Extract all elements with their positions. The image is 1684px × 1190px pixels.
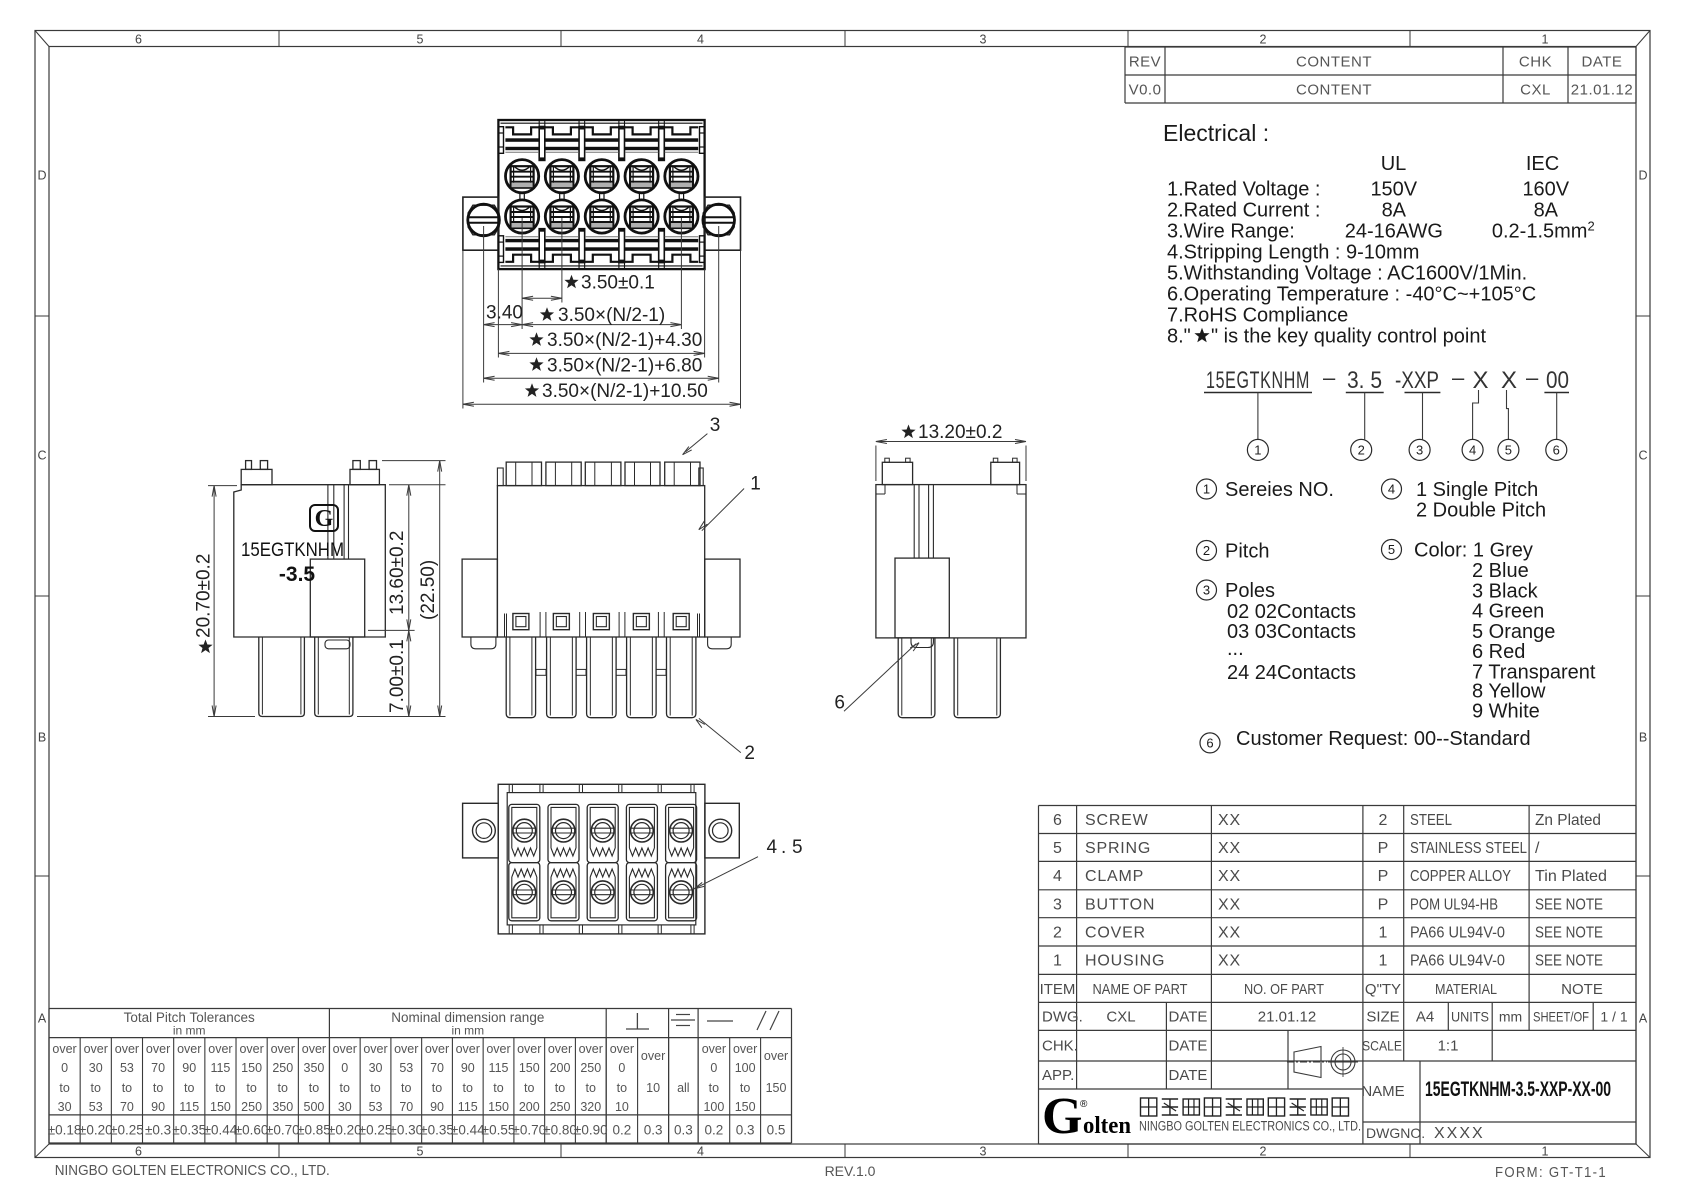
svg-text:SEE NOTE: SEE NOTE [1535,896,1603,913]
svg-text:6: 6 [135,33,142,47]
svg-text:3.50×(N/2-1)+4.30: 3.50×(N/2-1)+4.30 [547,330,702,351]
svg-text:to: to [340,1081,350,1095]
svg-text:250: 250 [580,1061,601,1075]
svg-text:to: to [215,1081,225,1095]
svg-text:5 Orange: 5 Orange [1472,621,1555,643]
svg-text:3.50×(N/2-1)+10.50: 3.50×(N/2-1)+10.50 [542,381,708,402]
svg-text:10: 10 [615,1100,629,1114]
svg-text:CHK.: CHK. [1042,1038,1078,1055]
svg-text:–: – [1526,365,1539,390]
svg-text:±0.25: ±0.25 [359,1123,393,1138]
svg-text:8 Yellow: 8 Yellow [1472,681,1546,703]
svg-text:±0.25: ±0.25 [110,1123,144,1138]
svg-text:350: 350 [304,1061,325,1075]
svg-text:X: X [1501,367,1517,394]
svg-text:15EGTKNHM: 15EGTKNHM [241,539,344,561]
svg-text:over: over [177,1042,201,1056]
svg-text:NAME OF PART: NAME OF PART [1093,981,1188,998]
svg-text:to: to [463,1081,473,1095]
svg-text:6 Red: 6 Red [1472,641,1525,663]
svg-text:STEEL: STEEL [1410,812,1452,829]
svg-text:53: 53 [369,1100,383,1114]
svg-text:1 / 1: 1 / 1 [1600,1009,1627,1025]
svg-text:0: 0 [341,1061,348,1075]
svg-text:to: to [59,1081,69,1095]
svg-text:to: to [153,1081,163,1095]
svg-text:to: to [586,1081,596,1095]
svg-text:0.3: 0.3 [674,1123,693,1138]
svg-text:4: 4 [697,33,704,47]
svg-text:over: over [579,1042,603,1056]
svg-text:6: 6 [834,693,845,714]
svg-text:ITEM: ITEM [1040,981,1076,998]
svg-text:to: to [401,1081,411,1095]
svg-text:3: 3 [980,1145,987,1159]
svg-text:90: 90 [461,1061,475,1075]
svg-text:Zn Plated: Zn Plated [1535,812,1601,829]
svg-text:A: A [1639,1012,1648,1026]
svg-text:03 03Contacts: 03 03Contacts [1227,621,1356,643]
svg-text:Customer Request: 00--Standard: Customer Request: 00--Standard [1236,728,1531,750]
svg-text:100: 100 [703,1100,724,1114]
svg-text:" is the key quality control p: " is the key quality control point [1211,326,1486,348]
svg-text:V0.0: V0.0 [1129,82,1162,99]
svg-text:30: 30 [338,1100,352,1114]
svg-text:olten: olten [1083,1113,1131,1139]
svg-text:±0.90: ±0.90 [574,1123,608,1138]
svg-text:3: 3 [980,33,987,47]
svg-text:UL: UL [1381,153,1407,175]
svg-text:IEC: IEC [1526,153,1559,175]
svg-text:3: 3 [1053,896,1062,913]
svg-text:70: 70 [399,1100,413,1114]
svg-text:115: 115 [179,1100,199,1114]
svg-text:6.Operating Temperature : -40°: 6.Operating Temperature : -40°C~+105°C [1167,284,1536,306]
svg-text:250: 250 [241,1100,262,1114]
svg-text:XX: XX [1218,840,1241,857]
svg-text:in mm: in mm [173,1024,206,1038]
svg-text:XX: XX [1218,868,1241,885]
svg-text:all: all [677,1081,690,1095]
svg-text:XXXX: XXXX [1434,1125,1485,1142]
svg-text:4: 4 [1469,442,1476,457]
svg-text:200: 200 [550,1061,571,1075]
svg-text:STAINLESS STEEL: STAINLESS STEEL [1410,840,1527,857]
svg-text:5: 5 [1388,542,1395,557]
svg-text:3: 3 [710,415,721,436]
svg-text:over: over [610,1042,634,1056]
svg-text:SEE NOTE: SEE NOTE [1535,924,1603,941]
svg-text:2: 2 [1358,442,1365,457]
svg-text:SCREW: SCREW [1085,812,1149,829]
svg-text:SCALE: SCALE [1362,1038,1402,1054]
svg-text:POM UL94-HB: POM UL94-HB [1410,896,1498,913]
svg-text:B: B [38,731,46,745]
svg-text:over: over [456,1042,480,1056]
svg-text:320: 320 [580,1100,601,1114]
svg-text:100: 100 [735,1061,756,1075]
svg-text:HOUSING: HOUSING [1085,953,1165,970]
svg-text:7.RoHS Compliance: 7.RoHS Compliance [1167,305,1348,327]
svg-text:over: over [641,1049,665,1063]
svg-text:1.Rated Voltage :: 1.Rated Voltage : [1167,179,1320,201]
svg-text:D: D [1638,169,1647,183]
svg-text:115: 115 [489,1061,509,1075]
svg-text:CXL: CXL [1106,1009,1135,1026]
svg-text:13.60±0.2: 13.60±0.2 [387,531,408,615]
svg-text:2: 2 [1260,33,1267,47]
svg-text:±0.70: ±0.70 [512,1123,546,1138]
svg-text:2: 2 [1203,543,1210,558]
svg-text:CONTENT: CONTENT [1296,54,1372,71]
svg-text:70: 70 [120,1100,134,1114]
svg-text:over: over [548,1042,572,1056]
svg-text:2: 2 [1053,924,1062,941]
svg-text:1: 1 [1053,953,1062,970]
svg-text:0.2: 0.2 [613,1123,632,1138]
svg-text:7.00±0.1: 7.00±0.1 [387,639,408,713]
svg-text:6: 6 [1053,812,1062,829]
svg-text:3.50×(N/2-1)+6.80: 3.50×(N/2-1)+6.80 [547,356,702,377]
svg-text:NOTE: NOTE [1561,981,1603,998]
svg-text:NO. OF PART: NO. OF PART [1244,981,1324,998]
svg-text:±0.70: ±0.70 [266,1123,300,1138]
svg-text:70: 70 [430,1061,444,1075]
svg-text:±0.35: ±0.35 [172,1123,206,1138]
svg-text:COVER: COVER [1085,924,1146,941]
svg-text:±0.20: ±0.20 [79,1123,113,1138]
svg-text:PA66 UL94V-0: PA66 UL94V-0 [1410,924,1505,941]
svg-text:90: 90 [430,1100,444,1114]
svg-text:to: to [493,1081,503,1095]
svg-text:3: 3 [1416,442,1423,457]
svg-text:-3.5: -3.5 [279,563,316,586]
svg-text:DWG.: DWG. [1042,1009,1083,1026]
svg-text:D: D [37,169,46,183]
svg-text:APP.: APP. [1042,1067,1074,1084]
svg-text:DATE: DATE [1169,1067,1208,1084]
svg-text:over: over [84,1042,108,1056]
svg-text:3.50±0.1: 3.50±0.1 [581,273,655,294]
svg-text:FORM: GT-T1-1: FORM: GT-T1-1 [1495,1164,1607,1181]
svg-text:CXL: CXL [1520,82,1551,99]
svg-text:C: C [37,449,46,463]
svg-text:2 Double Pitch: 2 Double Pitch [1416,500,1546,522]
svg-text:115: 115 [210,1061,230,1075]
svg-text:5: 5 [792,837,803,858]
svg-text:8.": 8." [1167,326,1191,348]
svg-text:over: over [333,1042,357,1056]
svg-text:±0.3: ±0.3 [145,1123,171,1138]
svg-text:CONTENT: CONTENT [1296,82,1372,99]
svg-text:to: to [246,1081,256,1095]
svg-text:150: 150 [735,1100,756,1114]
svg-text:to: to [524,1081,534,1095]
svg-text:150V: 150V [1370,179,1417,201]
svg-text:53: 53 [120,1061,134,1075]
svg-text:70: 70 [151,1061,165,1075]
svg-text:2: 2 [1379,812,1388,829]
svg-text:30: 30 [89,1061,103,1075]
svg-text:over: over [239,1042,263,1056]
svg-text:3: 3 [1203,583,1210,598]
svg-text:Sereies NO.: Sereies NO. [1225,479,1334,501]
svg-text:6: 6 [135,1145,142,1159]
svg-text:02 02Contacts: 02 02Contacts [1227,601,1356,623]
svg-text:30: 30 [369,1061,383,1075]
svg-text:in mm: in mm [451,1024,484,1038]
svg-text:over: over [363,1042,387,1056]
svg-text:over: over [52,1042,76,1056]
svg-text:21.01.12: 21.01.12 [1258,1009,1316,1026]
svg-text:SIZE: SIZE [1366,1009,1399,1026]
svg-text:to: to [278,1081,288,1095]
svg-text:NINGBO GOLTEN ELECTRONICS CO.,: NINGBO GOLTEN ELECTRONICS CO., LTD. [1139,1119,1361,1134]
svg-text:20.70±0.2: 20.70±0.2 [194,554,215,638]
svg-text:250: 250 [550,1100,571,1114]
svg-text:±0.85: ±0.85 [297,1123,331,1138]
svg-text:00: 00 [1546,367,1569,394]
svg-text:over: over [271,1042,295,1056]
svg-text:SHEET/OF: SHEET/OF [1533,1009,1589,1025]
svg-text:1: 1 [1379,953,1388,970]
svg-text:UNITS: UNITS [1451,1009,1489,1025]
svg-text:1 Single Pitch: 1 Single Pitch [1416,479,1538,501]
svg-text:0: 0 [61,1061,68,1075]
svg-text:3 Black: 3 Black [1472,580,1539,602]
svg-text:/: / [1535,840,1540,857]
svg-text:XX: XX [1218,896,1241,913]
svg-text:160V: 160V [1522,179,1569,201]
svg-text:mm: mm [1499,1009,1522,1025]
svg-text:®: ® [1080,1099,1088,1110]
svg-text:DWGNO.: DWGNO. [1366,1125,1425,1141]
svg-text:21.01.12: 21.01.12 [1571,82,1633,99]
svg-text:150: 150 [766,1081,787,1095]
svg-text:6: 6 [1206,735,1213,750]
svg-text:24 24Contacts: 24 24Contacts [1227,662,1356,684]
svg-text:over: over [517,1042,541,1056]
svg-text:0.2-1.5mm2: 0.2-1.5mm2 [1492,219,1595,243]
svg-text:–: – [1323,365,1336,390]
svg-text:DATE: DATE [1582,54,1623,71]
svg-text:13.20±0.2: 13.20±0.2 [918,422,1002,443]
svg-text:±0.35: ±0.35 [420,1123,454,1138]
svg-text:15EGTKNHM: 15EGTKNHM [1206,367,1310,394]
svg-text:1: 1 [1203,482,1210,497]
svg-text:to: to [709,1081,719,1095]
svg-text:3.Wire Range:: 3.Wire Range: [1167,221,1295,243]
svg-text:–: – [1452,365,1465,390]
svg-text:to: to [370,1081,380,1095]
svg-text:250: 250 [272,1061,293,1075]
svg-text:G: G [315,506,334,532]
svg-text:to: to [617,1081,627,1095]
svg-text:B: B [1639,731,1647,745]
svg-text:Electrical :: Electrical : [1163,120,1269,146]
svg-text:Pitch: Pitch [1225,541,1269,563]
svg-text:CHK: CHK [1519,54,1552,71]
svg-text:0: 0 [710,1061,717,1075]
svg-text:8A: 8A [1534,200,1559,222]
svg-text:0.5: 0.5 [767,1123,786,1138]
svg-text:5: 5 [1505,442,1512,457]
svg-text:1: 1 [1542,1145,1549,1159]
svg-text:over: over [764,1049,788,1063]
svg-text:SPRING: SPRING [1085,840,1151,857]
svg-text:90: 90 [182,1061,196,1075]
svg-text:over: over [394,1042,418,1056]
svg-text:over: over [486,1042,510,1056]
svg-text:P: P [1378,840,1389,857]
svg-text:1:1: 1:1 [1438,1038,1459,1055]
svg-text:Q"TY: Q"TY [1365,981,1401,998]
svg-text:4: 4 [1053,868,1062,885]
svg-text:4: 4 [697,1145,704,1159]
svg-text:8A: 8A [1382,200,1407,222]
svg-text:115: 115 [458,1100,478,1114]
svg-text:350: 350 [272,1100,293,1114]
svg-text:PA66 UL94V-0: PA66 UL94V-0 [1410,953,1505,970]
svg-text:0: 0 [618,1061,625,1075]
svg-text:over: over [733,1042,757,1056]
svg-text:COPPER ALLOY: COPPER ALLOY [1410,868,1511,885]
svg-text:4 Green: 4 Green [1472,601,1544,623]
svg-text:XX: XX [1218,812,1241,829]
svg-text:to: to [740,1081,750,1095]
svg-text:1: 1 [1542,33,1549,47]
svg-text:500: 500 [304,1100,325,1114]
svg-text:150: 150 [210,1100,231,1114]
svg-text:to: to [91,1081,101,1095]
svg-text:to: to [122,1081,132,1095]
svg-text:53: 53 [89,1100,103,1114]
svg-text:SEE NOTE: SEE NOTE [1535,953,1603,970]
svg-text:150: 150 [241,1061,262,1075]
svg-text:to: to [432,1081,442,1095]
svg-text:X: X [1473,367,1489,394]
svg-text:BUTTON: BUTTON [1085,896,1155,913]
svg-text:to: to [555,1081,565,1095]
svg-text:9 White: 9 White [1472,701,1540,723]
svg-text:4: 4 [767,837,778,858]
svg-text:2: 2 [1260,1145,1267,1159]
svg-text:REV: REV [1129,54,1161,71]
svg-text:4.Stripping Length : 9-10mm: 4.Stripping Length : 9-10mm [1167,242,1419,264]
svg-text:C: C [1638,449,1647,463]
svg-text:1: 1 [750,474,761,495]
svg-text:±0.44: ±0.44 [204,1123,238,1138]
svg-text:(22.50): (22.50) [418,560,439,620]
svg-text:±0.18: ±0.18 [48,1123,82,1138]
svg-text:24-16AWG: 24-16AWG [1345,221,1443,243]
svg-text:2 Blue: 2 Blue [1472,560,1529,582]
svg-text:Tin Plated: Tin Plated [1535,868,1607,885]
svg-text:XX: XX [1218,924,1241,941]
svg-text:...: ... [1227,638,1244,660]
svg-text:53: 53 [399,1061,413,1075]
svg-text:3. 5: 3. 5 [1347,367,1382,394]
svg-text:1: 1 [1379,924,1388,941]
svg-text:DATE: DATE [1169,1038,1208,1055]
svg-text:200: 200 [519,1100,540,1114]
svg-text:0.2: 0.2 [705,1123,724,1138]
svg-text:Poles: Poles [1225,580,1275,602]
svg-text:4: 4 [1388,482,1395,497]
svg-text:.: . [781,837,786,858]
svg-text:A: A [38,1012,47,1026]
svg-text:2: 2 [744,743,755,764]
svg-text:P: P [1378,896,1389,913]
svg-text:REV.1.0: REV.1.0 [825,1163,876,1179]
svg-text:0.3: 0.3 [644,1123,663,1138]
svg-text:5: 5 [417,33,424,47]
svg-text:MATERIAL: MATERIAL [1435,981,1497,998]
svg-text:XX: XX [1218,953,1241,970]
svg-text:15EGTKNHM-3.5-XXP-XX-00: 15EGTKNHM-3.5-XXP-XX-00 [1425,1078,1611,1101]
svg-text:±0.55: ±0.55 [482,1123,516,1138]
svg-text:NAME: NAME [1361,1083,1404,1100]
svg-text:A4: A4 [1416,1009,1434,1026]
svg-text:±0.80: ±0.80 [543,1123,577,1138]
svg-text:30: 30 [58,1100,72,1114]
svg-text:10: 10 [646,1081,660,1095]
svg-text:±0.60: ±0.60 [235,1123,269,1138]
svg-text:DATE: DATE [1169,1009,1208,1026]
svg-text:1: 1 [1254,442,1261,457]
svg-text:G: G [1042,1088,1082,1145]
svg-text:2.Rated Current :: 2.Rated Current : [1167,200,1320,222]
svg-text:-XXP: -XXP [1395,367,1439,394]
svg-text:over: over [702,1042,726,1056]
svg-text:150: 150 [488,1100,509,1114]
svg-text:3.40: 3.40 [486,303,523,324]
svg-text:3.50×(N/2-1): 3.50×(N/2-1) [558,305,665,326]
svg-text:over: over [302,1042,326,1056]
svg-text:to: to [184,1081,194,1095]
svg-text:over: over [425,1042,449,1056]
svg-text:±0.20: ±0.20 [328,1123,362,1138]
svg-text:90: 90 [151,1100,165,1114]
svg-text:over: over [146,1042,170,1056]
svg-text:0.3: 0.3 [736,1123,755,1138]
svg-text:Color: 1 Grey: Color: 1 Grey [1414,540,1533,562]
svg-text:P: P [1378,868,1389,885]
svg-text:6: 6 [1553,442,1560,457]
svg-text:NINGBO GOLTEN ELECTRONICS C: NINGBO GOLTEN ELECTRONICS CO., LTD. [55,1163,330,1179]
svg-text:over: over [208,1042,232,1056]
svg-text:5: 5 [1053,840,1062,857]
svg-text:5.Withstanding Voltage : AC160: 5.Withstanding Voltage : AC1600V/1Min. [1167,263,1527,285]
svg-text:±0.44: ±0.44 [451,1123,485,1138]
svg-text:to: to [309,1081,319,1095]
svg-text:5: 5 [417,1145,424,1159]
svg-text:CLAMP: CLAMP [1085,868,1144,885]
svg-text:±0.30: ±0.30 [389,1123,423,1138]
svg-text:150: 150 [519,1061,540,1075]
svg-text:over: over [115,1042,139,1056]
